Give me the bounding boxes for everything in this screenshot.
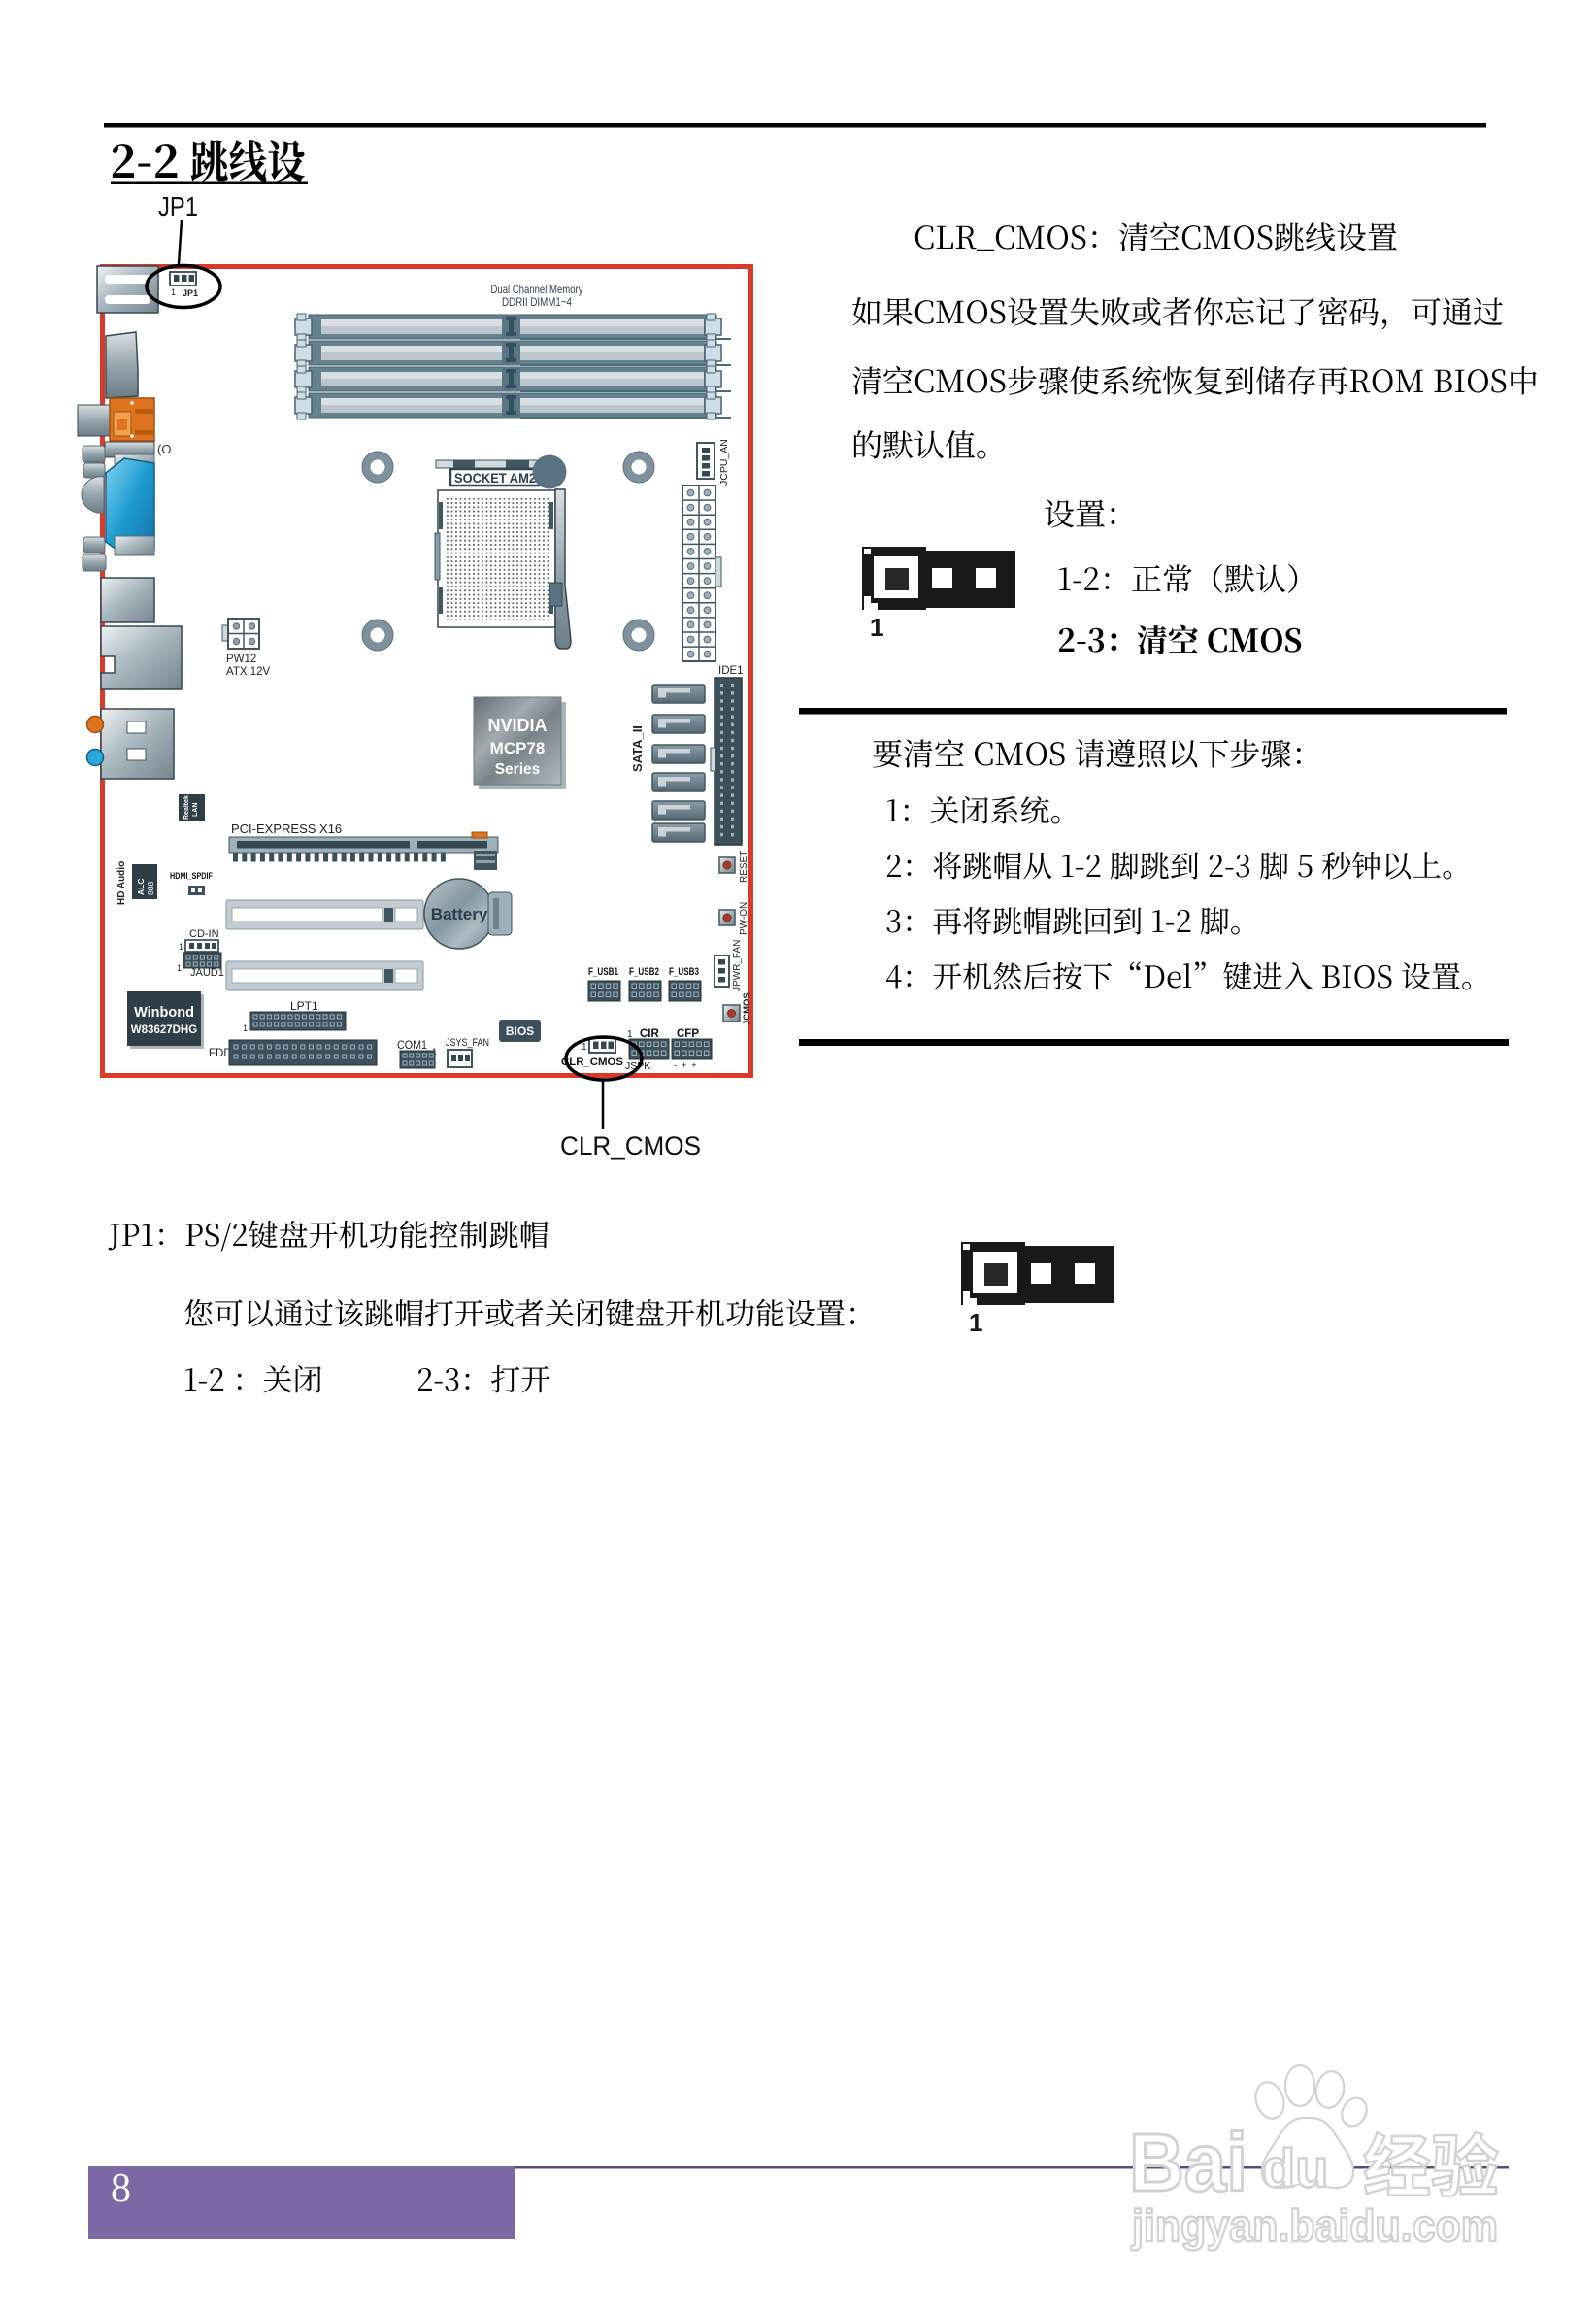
svg-text:PW12: PW12 [226, 654, 256, 665]
svg-text:Bai: Bai [1129, 2117, 1247, 2208]
svg-text:MCP78: MCP78 [490, 739, 546, 757]
svg-text:JP1: JP1 [158, 191, 198, 221]
svg-text:BIOS: BIOS [506, 1024, 534, 1038]
svg-text:- + +: - + + [674, 1060, 697, 1070]
svg-text:jingyan.baidu.com: jingyan.baidu.com [1131, 2200, 1498, 2251]
svg-text:Realtek: Realtek [183, 795, 190, 820]
svg-text:IDE1: IDE1 [718, 665, 744, 677]
svg-text:HDMI_SPDIF: HDMI_SPDIF [170, 871, 213, 881]
svg-text:FDD: FDD [209, 1048, 232, 1059]
svg-text:JPWR_FAN: JPWR_FAN [732, 940, 743, 991]
svg-text:PCI-EXPRESS X16: PCI-EXPRESS X16 [231, 821, 342, 836]
svg-text:JSYS_FAN: JSYS_FAN [446, 1037, 489, 1049]
svg-text:SATA_II: SATA_II [630, 725, 645, 772]
svg-text:PW-ON: PW-ON [739, 902, 749, 935]
svg-text:COM1: COM1 [397, 1040, 427, 1052]
svg-text:8: 8 [111, 2166, 131, 2211]
svg-text:W83627DHG: W83627DHG [131, 1024, 197, 1036]
svg-text:JP1: JP1 [183, 288, 198, 298]
svg-text:888: 888 [146, 882, 155, 895]
svg-text:F_USB2: F_USB2 [629, 966, 659, 978]
svg-text:Winbond: Winbond [134, 1005, 194, 1021]
svg-text:F_USB1: F_USB1 [588, 966, 618, 978]
svg-text:JCPU_AN: JCPU_AN [718, 439, 730, 486]
svg-text:LAN: LAN [192, 803, 199, 817]
svg-text:JCMOS: JCMOS [742, 992, 752, 1025]
svg-text:1: 1 [171, 287, 176, 297]
svg-text:1: 1 [179, 942, 183, 952]
svg-text:SOCKET AM2: SOCKET AM2 [454, 471, 536, 486]
svg-text:Battery: Battery [431, 905, 488, 923]
svg-text:1: 1 [177, 963, 182, 973]
svg-text:CLR_CMOS: CLR_CMOS [560, 1131, 701, 1160]
svg-text:Dual Channel Memory: Dual Channel Memory [491, 283, 583, 296]
svg-text:1: 1 [627, 1029, 633, 1040]
svg-text:ALC: ALC [136, 879, 146, 895]
svg-text:(O: (O [157, 442, 171, 456]
svg-text:CFP: CFP [677, 1028, 699, 1040]
svg-text:du: du [1262, 2137, 1328, 2198]
svg-text:1: 1 [243, 1023, 248, 1033]
svg-text:F_USB3: F_USB3 [669, 966, 699, 978]
svg-text:Series: Series [495, 761, 541, 778]
svg-text:ATX 12V: ATX 12V [226, 666, 270, 678]
svg-text:NVIDIA: NVIDIA [487, 716, 547, 735]
svg-text:1: 1 [582, 1042, 587, 1053]
svg-text:CD-IN: CD-IN [189, 928, 219, 940]
svg-text:CIR: CIR [640, 1028, 660, 1040]
svg-text:JAUD1: JAUD1 [190, 967, 224, 979]
svg-text:HD Audio: HD Audio [116, 861, 127, 905]
svg-text:DDRII DIMM1~4: DDRII DIMM1~4 [502, 295, 572, 309]
svg-text:RESET: RESET [739, 851, 749, 883]
svg-text:LPT1: LPT1 [290, 999, 318, 1013]
